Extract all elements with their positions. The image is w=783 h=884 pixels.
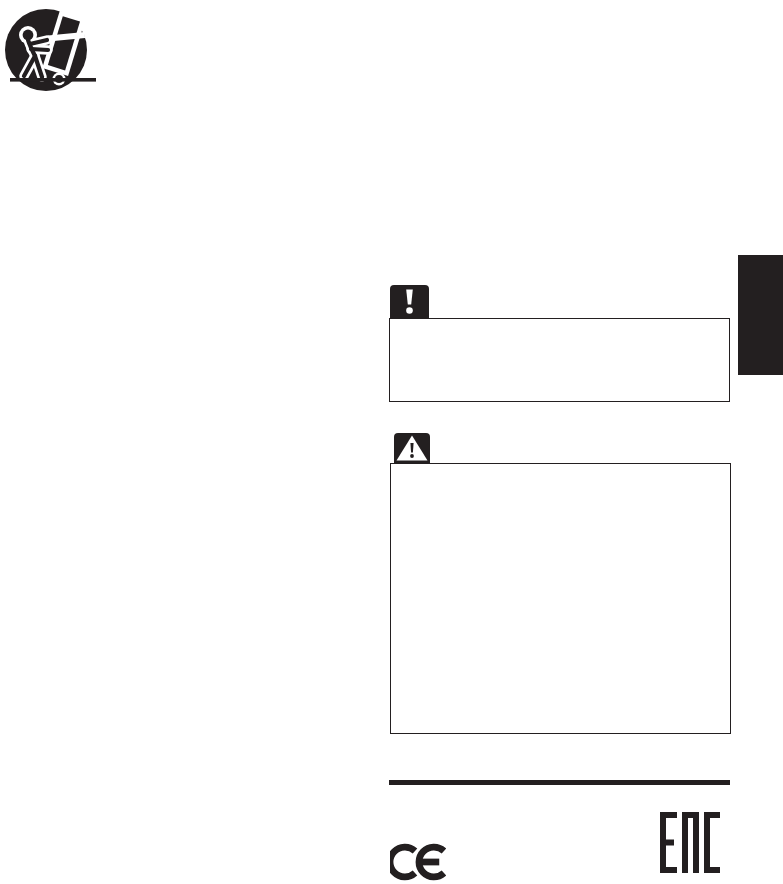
manual-page	[0, 0, 783, 884]
eac-letter-e	[660, 812, 677, 873]
eac-letter-c	[704, 812, 720, 873]
eac-mark	[660, 812, 720, 873]
warning-triangle-glyph	[394, 433, 430, 463]
exclamation-icon	[390, 285, 429, 318]
ce-mark	[390, 843, 446, 881]
caution-note-box	[389, 318, 730, 402]
warning-note-box	[390, 463, 731, 734]
exclamation-glyph	[390, 285, 429, 318]
ce-letter-c	[390, 847, 415, 877]
section-edge-tab	[738, 255, 783, 375]
cart-tip-warning-icon	[4, 8, 98, 96]
eac-letter-a	[682, 812, 699, 873]
warning-triangle-icon	[394, 433, 430, 463]
ground-line	[10, 78, 96, 82]
footer-divider	[389, 780, 730, 785]
